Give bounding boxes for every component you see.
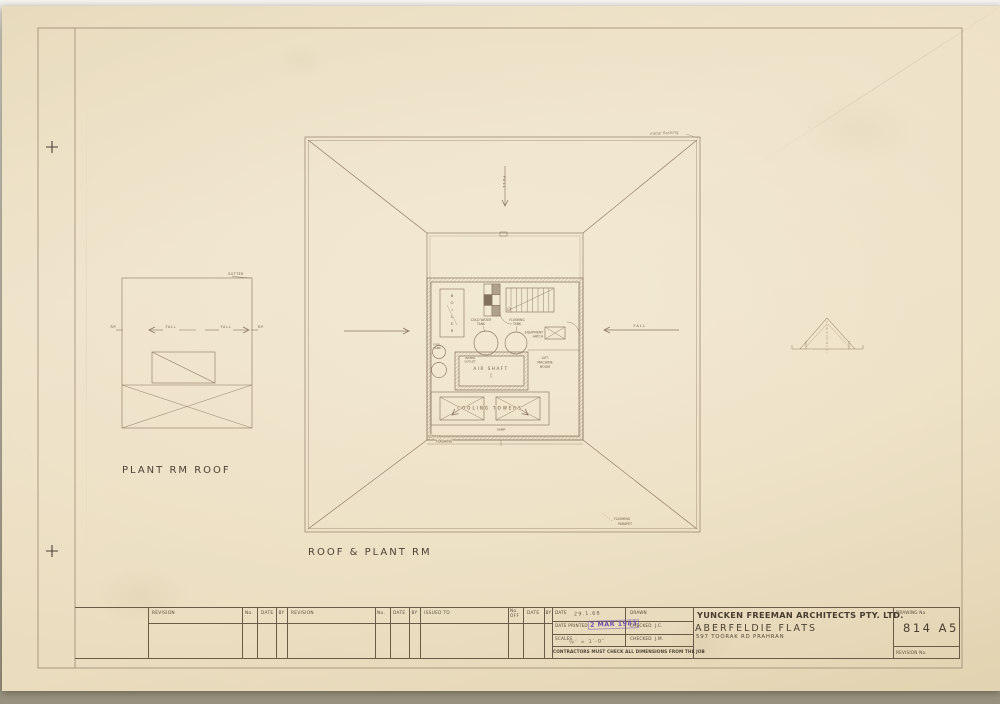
tb-line	[287, 608, 288, 658]
label-lift-machine-3: ROOM	[540, 365, 550, 369]
label-lift-machine-1: LIFT	[542, 356, 550, 360]
tb-line	[523, 608, 524, 658]
label-cold-water-2: TANK	[476, 322, 486, 326]
tb-checked2-value: J.M.	[655, 636, 663, 641]
label-flashing-parapet-1: FLASHING	[614, 517, 631, 521]
tb-header-no-1: No.	[245, 611, 253, 616]
caption-roof-plant-rm: ROOF & PLANT RM	[308, 547, 432, 558]
border-frame	[38, 28, 962, 668]
tb-scales-value: ⅛″ = 1′-0″	[569, 638, 605, 645]
tb-line	[276, 608, 277, 658]
label-boiler-b: B	[451, 293, 454, 298]
label-lift-machine-2: MACHINE	[537, 361, 552, 365]
tb-line	[148, 608, 149, 658]
label-fall-left-small: FALL	[166, 325, 177, 329]
label-cooling-towers: COOLING TOWERS	[457, 406, 522, 411]
tb-checked2-label: CHECKED	[630, 636, 652, 641]
label-rp-right: R.P.	[258, 325, 264, 329]
label-fall-right-small: FALL	[221, 325, 232, 329]
tb-line	[375, 608, 376, 658]
tb-checked1-value: J.C.	[655, 623, 663, 628]
tb-header-date-2: DATE	[393, 611, 405, 616]
tb-date-value: 29.1.68	[574, 611, 601, 618]
label-boiler-e: E	[451, 321, 454, 326]
tb-header-by-3: BY	[546, 611, 552, 616]
tb-drawing-no-value: 814 A5	[903, 621, 959, 635]
label-gutter-flashing-1: GUTTER	[428, 435, 442, 439]
tb-revision-no-label: REVISION No.	[896, 650, 927, 655]
tb-line	[409, 608, 410, 658]
label-fall-top: FALL	[502, 176, 506, 189]
tb-line	[242, 608, 243, 658]
tb-firm-name: YUNCKEN FREEMAN ARCHITECTS PTY. LTD.	[697, 610, 904, 620]
label-equipment-hatch-2: HATCH	[533, 335, 544, 339]
label-boiler-o: O	[451, 300, 454, 305]
tb-line	[544, 608, 545, 658]
tb-header-by-1: BY	[279, 611, 285, 616]
label-gutter-small: GUTTER	[228, 272, 244, 276]
label-air-shaft: AIR SHAFT	[473, 366, 508, 371]
plant-rm-roof-plan	[116, 277, 258, 429]
tb-header-issued-to: ISSUED TO	[424, 611, 450, 616]
label-flashing-note: metal flashing	[650, 129, 679, 136]
tb-header-by-2: BY	[412, 611, 418, 616]
label-sump: SUMP	[497, 428, 505, 432]
tb-line	[420, 608, 421, 658]
tb-project-name: ABERFELDIE FLATS	[695, 623, 817, 634]
label-boiler-r: R	[451, 328, 454, 333]
tb-line	[508, 608, 509, 658]
tb-line	[552, 634, 693, 635]
tb-header-revision-1: REVISION	[152, 611, 175, 616]
registration-marks	[46, 141, 58, 557]
tb-header-no-2: No.	[377, 611, 385, 616]
scanned-drawing-sheet: GUTTER R.P. R.P. FALL FALL PLANT RM ROOF	[0, 0, 1000, 704]
drawing-linework: GUTTER R.P. R.P. FALL FALL PLANT RM ROOF	[0, 0, 1000, 704]
tb-line	[893, 646, 959, 647]
tb-header-revision-2: REVISION	[291, 611, 314, 616]
label-water-outlet-2: OUTLET	[464, 360, 476, 364]
tb-line	[552, 646, 693, 647]
label-boiler-i: I	[451, 307, 452, 312]
tb-header-date-1: DATE	[261, 611, 273, 616]
tb-line	[390, 608, 391, 658]
title-block: REVISION No. DATE BY REVISION No. DATE B…	[75, 607, 960, 659]
tb-contractors-note: CONTRACTORS MUST CHECK ALL DIMENSIONS FR…	[553, 650, 705, 655]
roof-plant-rm-plan	[305, 134, 700, 532]
tb-project-address: 597 TOORAK RD PRAHRAN	[696, 634, 784, 640]
tb-drawn-label: DRAWN	[630, 610, 647, 615]
label-flushing-tank-2: TANK	[512, 322, 522, 326]
tb-line	[148, 623, 552, 624]
tb-line	[257, 608, 258, 658]
label-rp-left: R.P.	[110, 325, 116, 329]
label-fuel-tank-2: TANK	[432, 346, 441, 350]
label-fall-right: FALL	[634, 324, 647, 328]
tb-checked1-label: CHECKED	[630, 623, 652, 628]
tb-date-printed-label: DATE PRINTED	[555, 623, 588, 628]
tb-drawing-no-label: DRAWING No.	[896, 610, 927, 615]
label-gutter-flashing-2: FLASHING	[436, 440, 453, 444]
tb-header-no-off-2: OFF	[510, 614, 519, 619]
caption-plant-rm-roof: PLANT RM ROOF	[122, 465, 231, 476]
label-flashing-parapet-2: PARAPET	[618, 522, 632, 526]
tb-date-label: DATE	[555, 610, 567, 615]
roof-vent-detail	[792, 318, 863, 353]
tb-line	[959, 608, 960, 658]
tb-header-no-off-1: No.	[510, 609, 518, 614]
tb-header-date-3: DATE	[527, 611, 539, 616]
